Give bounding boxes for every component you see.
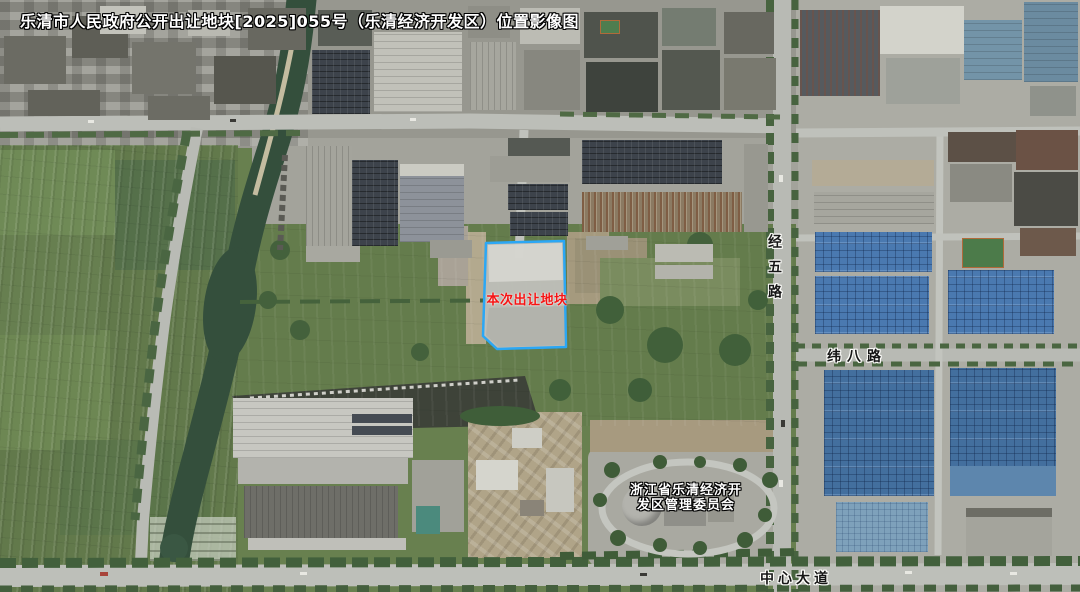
building: [400, 164, 464, 176]
greenhouses: [150, 517, 236, 561]
field-texture: [236, 224, 796, 426]
building: [800, 10, 880, 96]
building: [508, 138, 570, 156]
building: [512, 428, 542, 448]
solar-roof-building: [312, 50, 370, 114]
building: [812, 160, 934, 186]
solar-roof-building: [582, 140, 722, 184]
construction-ground: [468, 412, 582, 558]
building: [950, 164, 1012, 202]
building: [586, 236, 628, 250]
building: [948, 132, 1016, 162]
map-title: 乐清市人民政府公开出让地块[2025]055号（乐清经济开发区）位置影像图: [20, 8, 579, 32]
solar-strip: [352, 414, 412, 423]
building: [400, 164, 464, 242]
building: [966, 508, 1052, 517]
pool: [416, 506, 440, 534]
solar-roof-building: [510, 212, 568, 236]
building: [214, 56, 276, 104]
building: [430, 240, 472, 258]
solar-roof-building: [836, 502, 928, 552]
solar-roof-building: [948, 270, 1054, 334]
building: [662, 50, 720, 110]
building: [524, 50, 580, 110]
solar-roof-building: [508, 184, 568, 210]
factory-building: [244, 486, 398, 538]
parcel-label: 本次出让地块: [477, 289, 577, 308]
building: [374, 32, 462, 112]
building: [950, 466, 1056, 496]
building: [520, 500, 544, 516]
building: [470, 42, 516, 110]
building: [586, 62, 658, 112]
solar-roof-building: [352, 160, 398, 246]
solar-roof-building: [824, 370, 934, 496]
solar-strip: [352, 426, 412, 435]
building: [964, 20, 1022, 80]
building: [1016, 130, 1078, 170]
building: [490, 156, 570, 182]
road-label-jingwu: 经五路: [764, 234, 784, 309]
zhongxin-road: [0, 574, 1080, 576]
building: [148, 96, 210, 120]
building: [724, 12, 774, 54]
river: [160, 0, 302, 562]
building: [306, 246, 360, 262]
building: [662, 8, 716, 46]
building: [584, 12, 658, 58]
top-road: [0, 121, 790, 126]
building: [744, 144, 768, 232]
building: [886, 58, 960, 104]
building: [1020, 228, 1076, 256]
building: [476, 460, 518, 490]
building: [546, 468, 574, 512]
factory-building: [238, 458, 408, 484]
farmland-texture: [0, 145, 238, 592]
factory-building: [248, 538, 406, 550]
building: [132, 42, 196, 94]
building: [1030, 86, 1076, 116]
building: [655, 244, 713, 262]
river-path: [174, 0, 302, 562]
solar-roof-building: [815, 276, 929, 334]
sports-court: [962, 238, 1004, 268]
satellite-map: 乐清市人民政府公开出让地块[2025]055号（乐清经济开发区）位置影像图 本次…: [0, 0, 1080, 592]
committee-label: 浙江省乐清经济开 发区管理委员会: [612, 483, 760, 513]
left-road: [141, 128, 197, 562]
solar-roof-building: [950, 368, 1056, 496]
road-label-zhongxin: 中心大道: [760, 568, 832, 588]
building: [28, 90, 100, 116]
building: [655, 265, 713, 279]
road-label-weiba: 纬八路: [827, 346, 887, 366]
building: [880, 6, 964, 54]
committee-line2: 发区管理委员会: [637, 498, 735, 513]
solar-roof-building: [815, 232, 932, 272]
building: [1014, 172, 1078, 226]
warehouse-building: [582, 192, 742, 232]
building: [724, 58, 776, 110]
factory-building: [233, 398, 413, 458]
building: [966, 508, 1052, 556]
building: [4, 36, 66, 84]
building: [306, 146, 352, 246]
sports-court: [600, 20, 620, 34]
building: [1024, 2, 1078, 82]
committee-line1: 浙江省乐清经济开: [630, 483, 742, 498]
building: [412, 460, 464, 532]
building: [814, 192, 934, 224]
